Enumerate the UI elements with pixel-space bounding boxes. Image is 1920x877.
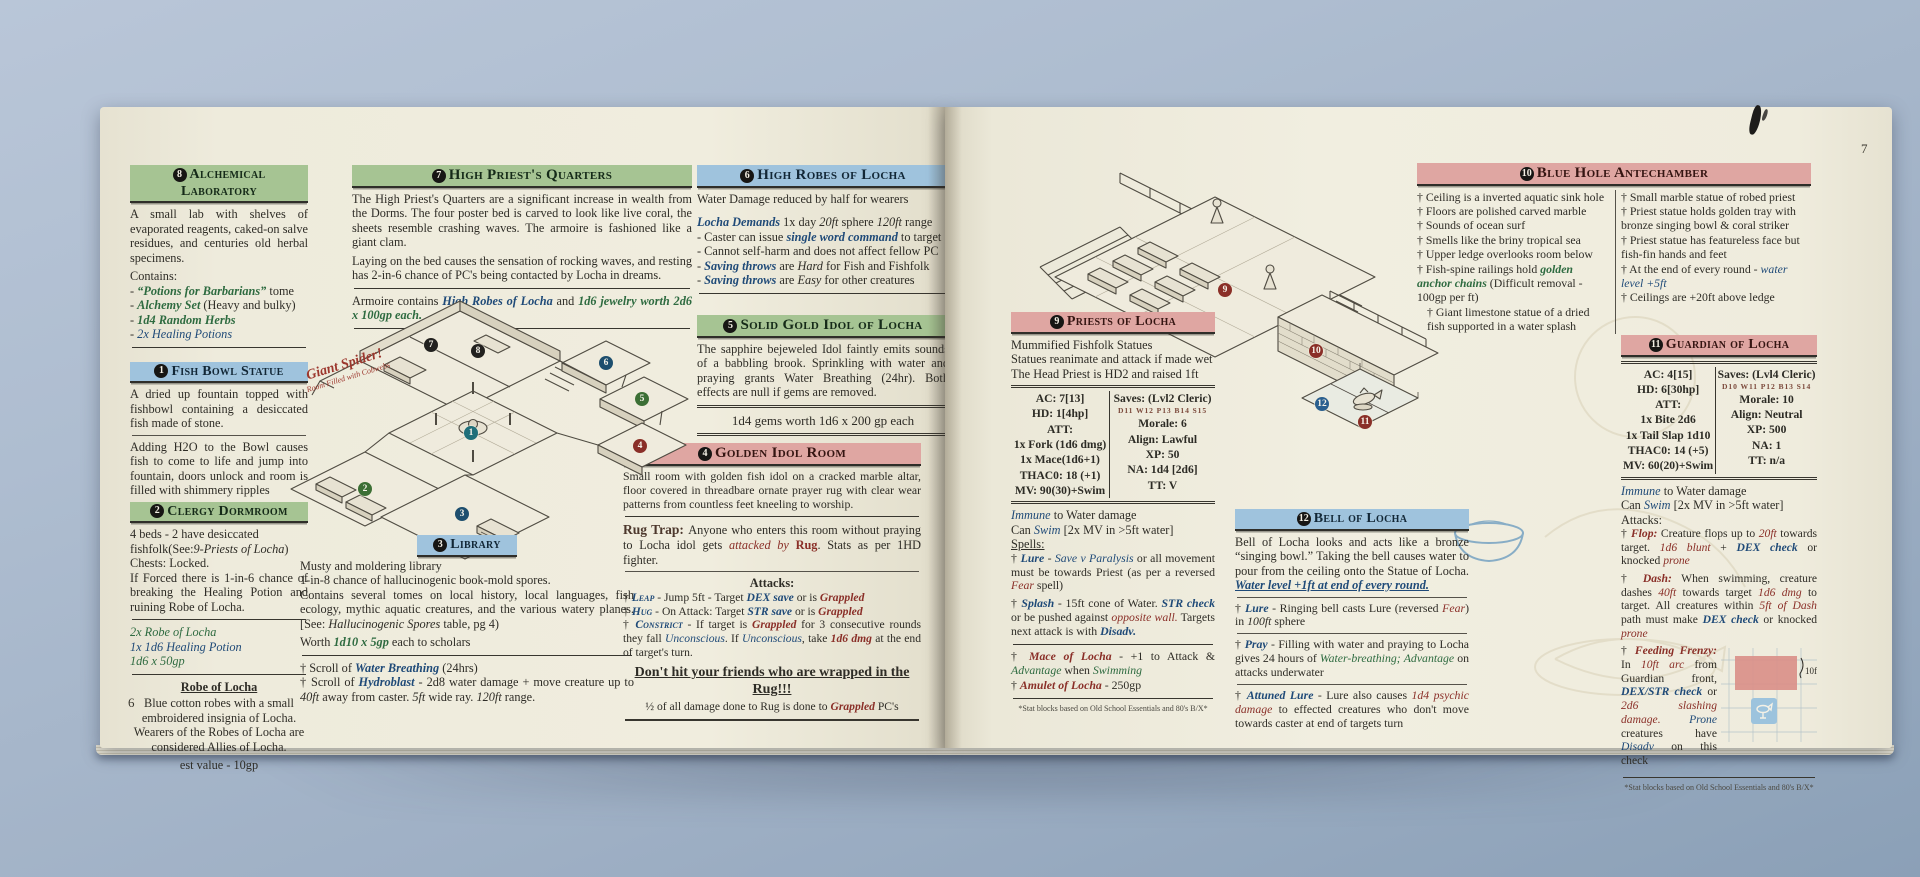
stat-line: 1x Mace(1d6+1) (1011, 452, 1109, 467)
diagram-distance-label: 10ft (1805, 666, 1817, 676)
stat-line: THAC0: 18 (+1) (1011, 468, 1109, 483)
high-robes-spell-line: Locha Demands 1x day 20ft sphere 120ft r… (697, 215, 949, 230)
stat-line: AC: 7[13] (1011, 391, 1109, 406)
stat-line: 1x Tail Slap 1d10 (1621, 428, 1715, 443)
stat-line: Morale: 6 (1110, 416, 1215, 431)
map-marker-7: 7 (424, 338, 438, 352)
section-number-badge: 2 (150, 504, 164, 518)
bell-bullet: † Attuned Lure - Lure also causes 1d4 ps… (1235, 689, 1469, 731)
alchemical-item: - “Potions for Barbarians” tome (130, 284, 308, 299)
stat-line: ATT: (1621, 397, 1715, 412)
map-marker-4: 4 (633, 439, 647, 453)
section-header-solid-gold-idol: 5Solid Gold Idol of Locha (697, 315, 949, 338)
priests-desc: Mummified Fishfolk Statues (1011, 338, 1215, 353)
blue-hole-bullet: † Ceiling is a inverted aquatic sink hol… (1417, 190, 1610, 204)
library-line: 1-in-8 chance of hallucinogenic book-mol… (300, 573, 634, 588)
section-number-badge: 9 (1050, 315, 1064, 329)
section-number-badge: 8 (173, 168, 187, 182)
map-marker-5: 5 (635, 392, 649, 406)
section-title: Blue Hole Antechamber (1537, 165, 1708, 181)
blue-hole-bullet: † Floors are polished carved marble (1417, 204, 1610, 218)
blue-hole-bullet: † At the end of every round - water leve… (1621, 262, 1811, 291)
guardian-attack-line: † Flop: Creature flops up to 20ft toward… (1621, 527, 1817, 568)
blue-hole-bullet: † Priest statue has featureless face but… (1621, 233, 1811, 262)
stat-line: MV: 90(30)+Swim (1011, 483, 1109, 498)
priests-spell-line: † Splash - 15ft cone of Water. STR check… (1011, 597, 1215, 639)
priests-ability: Immune to Water damage (1011, 508, 1215, 523)
stat-column-right: Saves: (Lvl2 Cleric) D11 W12 P13 B14 S15… (1109, 391, 1215, 498)
map-marker-12: 12 (1315, 397, 1329, 411)
priests-ability: Can Swim [2x MV in >5ft water] (1011, 523, 1215, 538)
stat-line: HD: 6[30hp] (1621, 382, 1715, 397)
page-6: 8Alchemical Laboratory A small lab with … (100, 107, 945, 748)
section-number-badge: 5 (723, 319, 737, 333)
high-robes-line: Water Damage reduced by half for wearers (697, 192, 949, 207)
stat-saves-line: D11 W12 P13 B14 S15 (1110, 406, 1215, 416)
stat-line: ATT: (1011, 422, 1109, 437)
priests-stat-block: AC: 7[13] HD: 1[4hp] ATT: 1x Fork (1d6 d… (1011, 385, 1215, 504)
priests-desc: The Head Priest is HD2 and raised 1ft (1011, 367, 1215, 382)
map-marker-8: 8 (471, 344, 485, 358)
priests-spell-line: † Lure - Save v Paralysis or all movemen… (1011, 552, 1215, 594)
page6-column-3: 6High Robes of Locha Water Damage reduce… (697, 165, 949, 299)
page7-bell-block: 12Bell of Locha Bell of Locha looks and … (1235, 509, 1469, 735)
stat-line: 1x Fork (1d6 dmg) (1011, 437, 1109, 452)
stat-line: THAC0: 14 (+5) (1621, 443, 1715, 458)
priests-spells-label: Spells: (1011, 537, 1215, 552)
guardian-attacks-label: Attacks: (1621, 513, 1817, 528)
stat-line: 1x Bite 2d6 (1621, 412, 1715, 427)
section-title: High Priest's Quarters (449, 167, 612, 183)
page6-gold-idol-block: 5Solid Gold Idol of Locha The sapphire b… (697, 315, 949, 441)
book-spread: 8Alchemical Laboratory A small lab with … (0, 0, 1920, 877)
blue-hole-bullet: † Giant limestone statue of a dried fish… (1417, 305, 1610, 334)
stat-column-left: AC: 7[13] HD: 1[4hp] ATT: 1x Fork (1d6 d… (1011, 391, 1109, 498)
blue-hole-bullet: † Priest statue holds golden tray with b… (1621, 204, 1811, 233)
rug-half-damage-line: ½ of all damage done to Rug is done to G… (623, 700, 921, 714)
section-title: Guardian of Locha (1666, 337, 1789, 352)
section-number-badge: 3 (433, 538, 447, 552)
blue-hole-bullet: † Small marble statue of robed priest (1621, 190, 1811, 204)
ink-smudge (1761, 109, 1769, 122)
guardian-frenzy-row: 10ft † Feeding Frenzy: In 10ft arc from … (1621, 644, 1817, 771)
library-scroll-line: † Scroll of Hydroblast - 2d8 water damag… (300, 675, 634, 704)
section-number-badge: 12 (1297, 512, 1311, 526)
section-header-high-robes-of-locha: 6High Robes of Locha (697, 165, 949, 188)
stat-line: AC: 4[15] (1621, 367, 1715, 382)
map-marker-9: 9 (1218, 283, 1232, 297)
page-number-6: 6 (128, 695, 135, 711)
page7-priests-column: 9Priests of Locha Mummified Fishfolk Sta… (1011, 312, 1215, 713)
blue-hole-bullet: † Ceilings are +20ft above ledge (1621, 290, 1811, 304)
page-number-7: 7 (1861, 141, 1868, 157)
book-gutter (928, 107, 962, 748)
section-title: Solid Gold Idol of Locha (740, 317, 922, 333)
guardian-ability: Immune to Water damage (1621, 484, 1817, 499)
high-robes-bullet: - Caster can issue single word command t… (697, 230, 949, 245)
stat-line: XP: 500 (1716, 422, 1817, 437)
blue-hole-bullet: † Upper ledge overlooks room below (1417, 247, 1610, 261)
section-number-badge: 1 (154, 364, 168, 378)
map-marker-10: 10 (1309, 344, 1323, 358)
section-header-high-priests-quarters: 7High Priest's Quarters (352, 165, 692, 188)
stat-line: Align: Lawful (1110, 432, 1215, 447)
section-title: Alchemical Laboratory (181, 167, 266, 199)
gold-idol-body: The sapphire bejeweled Idol faintly emit… (697, 342, 949, 400)
bell-bullet: † Pray - Filling with water and praying … (1235, 638, 1469, 680)
section-title: High Robes of Locha (757, 167, 905, 183)
stat-line: TT: V (1110, 478, 1215, 493)
stat-line: Morale: 10 (1716, 392, 1817, 407)
high-robes-bullet: - Saving throws are Hard for Fish and Fi… (697, 259, 949, 274)
section-header-guardian-of-locha: 11Guardian of Locha (1621, 335, 1817, 357)
stat-line: Saves: (Lvl2 Cleric) (1110, 391, 1215, 406)
bell-bullet: † Lure - Ringing bell casts Lure (revers… (1235, 602, 1469, 630)
stat-line: NA: 1 (1716, 438, 1817, 453)
gold-idol-gems-line: 1d4 gems worth 1d6 x 200 gp each (697, 413, 949, 428)
map-marker-11: 11 (1358, 415, 1372, 429)
blue-hole-column-left: † Ceiling is a inverted aquatic sink hol… (1417, 190, 1615, 334)
alchemical-body: A small lab with shelves of evaporated r… (130, 207, 308, 265)
section-title: Golden Idol Room (715, 445, 846, 461)
feeding-frenzy-diagram: 10ft (1721, 648, 1817, 742)
map-marker-6: 6 (599, 356, 613, 370)
library-line: Musty and moldering library (300, 559, 634, 574)
priests-item-line: † Amulet of Locha - 250gp (1011, 679, 1215, 693)
map-marker-2: 2 (358, 482, 372, 496)
section-header-alchemical-laboratory: 8Alchemical Laboratory (130, 165, 308, 203)
alchemical-contains-label: Contains: (130, 269, 308, 284)
stat-line: Align: Neutral (1716, 407, 1817, 422)
guardian-stat-block: AC: 4[15] HD: 6[30hp] ATT: 1x Bite 2d6 1… (1621, 361, 1817, 480)
page7-blue-hole-block: 10Blue Hole Antechamber † Ceiling is a i… (1417, 163, 1811, 334)
stat-line: Saves: (Lvl4 Cleric) (1716, 367, 1817, 382)
blue-hole-bullet: † Sounds of ocean surf (1417, 218, 1610, 232)
section-number-badge: 7 (432, 169, 446, 183)
stat-line: MV: 60(20)+Swim (1621, 458, 1715, 473)
section-number-badge: 11 (1649, 338, 1663, 352)
page7-guardian-column: 11Guardian of Locha AC: 4[15] HD: 6[30hp… (1621, 335, 1817, 792)
high-priest-body-1: The High Priest's Quarters are a signifi… (352, 192, 692, 250)
bell-body: Bell of Locha looks and acts like a bron… (1235, 535, 1469, 593)
library-scroll-line: † Scroll of Water Breathing (24hrs) (300, 661, 634, 676)
blue-hole-bullet: † Smells like the briny tropical sea (1417, 233, 1610, 247)
guardian-ability: Can Swim [2x MV in >5ft water] (1621, 498, 1817, 513)
blue-hole-bullet: † Fish-spine railings hold golden anchor… (1417, 262, 1610, 305)
section-header-blue-hole-antechamber: 10Blue Hole Antechamber (1417, 163, 1811, 186)
blue-hole-column-right: † Small marble statue of robed priest † … (1615, 190, 1811, 334)
stat-footnote: *Stat blocks based on Old School Essenti… (1621, 783, 1817, 792)
high-robes-bullet: - Saving throws are Easy for other creat… (697, 273, 949, 288)
section-number-badge: 10 (1520, 167, 1534, 181)
stat-column-left: AC: 4[15] HD: 6[30hp] ATT: 1x Bite 2d6 1… (1621, 367, 1715, 474)
stat-column-right: Saves: (Lvl4 Cleric) D10 W11 P12 B13 S14… (1715, 367, 1817, 474)
stat-line: NA: 1d4 [2d6] (1110, 462, 1215, 477)
library-line: Contains several tomes on local history,… (300, 588, 634, 632)
robe-of-locha-body: Blue cotton robes with a small embroider… (130, 696, 308, 754)
stat-line: HD: 1[4hp] (1011, 406, 1109, 421)
priests-item-line: † Mace of Locha - +1 to Attack & Advanta… (1011, 650, 1215, 678)
library-line: Worth 1d10 x 5gp each to scholars (300, 635, 634, 650)
guardian-attack-line: † Dash: When swimming, creature dashes 4… (1621, 572, 1817, 640)
high-priest-body-2: Laying on the bed causes the sensation o… (352, 254, 692, 283)
section-title: Library (450, 537, 501, 552)
section-header-priests-of-locha: 9Priests of Locha (1011, 312, 1215, 334)
priests-desc: Statues reanimate and attack if made wet (1011, 352, 1215, 367)
page-7: 9101112 9Priests of Locha Mummified Fish… (945, 107, 1892, 748)
section-title: Bell of Locha (1314, 511, 1407, 526)
blue-hole-columns: † Ceiling is a inverted aquatic sink hol… (1417, 190, 1811, 334)
high-robes-bullet: - Cannot self-harm and does not affect f… (697, 244, 949, 259)
map-marker-3: 3 (455, 507, 469, 521)
section-header-library: 3Library (417, 535, 517, 557)
stat-line: TT: n/a (1716, 453, 1817, 468)
section-title: Priests of Locha (1067, 314, 1176, 329)
stat-saves-line: D10 W11 P12 B13 S14 (1716, 382, 1817, 392)
section-header-bell-of-locha: 12Bell of Locha (1235, 509, 1469, 531)
robe-of-locha-value: est value - 10gp (130, 758, 308, 773)
page6-library-block: 3Library Musty and moldering library 1-i… (300, 535, 634, 708)
map-marker-1: 1 (464, 426, 478, 440)
stat-line: XP: 50 (1110, 447, 1215, 462)
stat-footnote: *Stat blocks based on Old School Essenti… (1011, 704, 1215, 713)
section-number-badge: 6 (740, 169, 754, 183)
